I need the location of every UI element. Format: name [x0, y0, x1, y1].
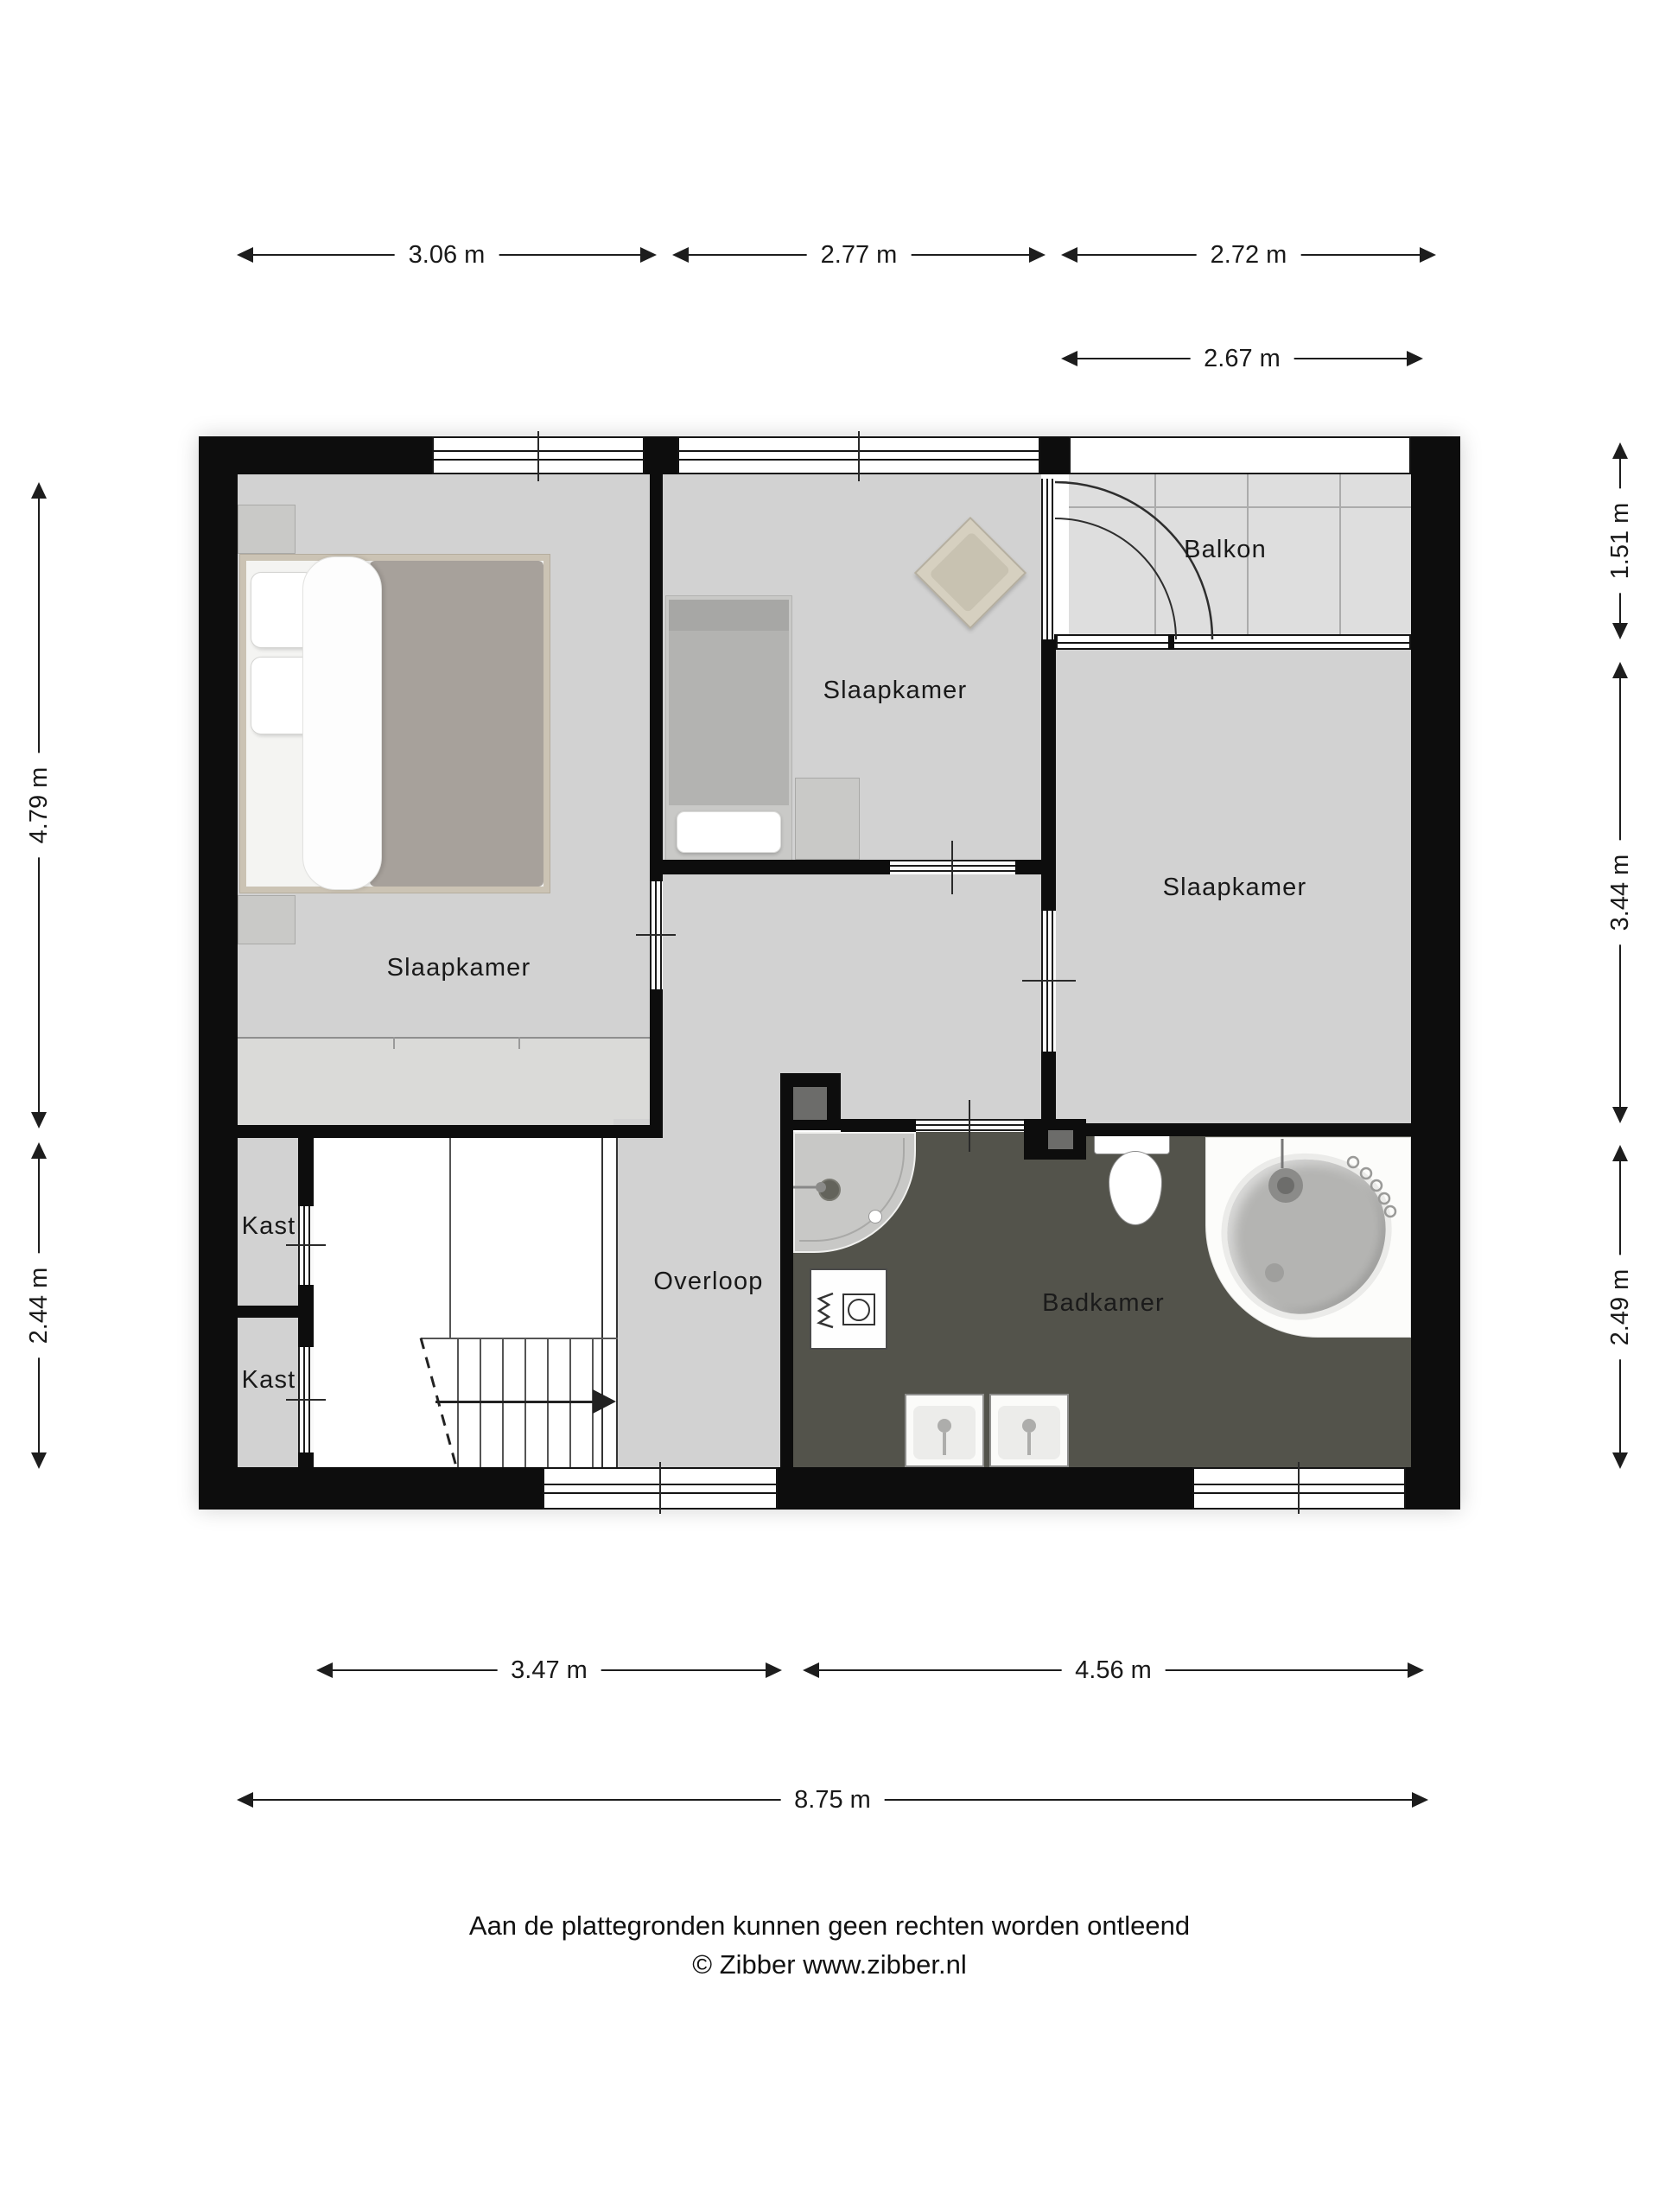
- dimension-balcony-width: 2.67 m: [1061, 345, 1423, 372]
- dimension-bottom-1: 3.47 m: [316, 1656, 782, 1684]
- dimension-top-1: 3.06 m: [237, 241, 657, 269]
- detail-overlay: [0, 0, 1659, 2212]
- sink-tap: [938, 1419, 951, 1433]
- dimension-bottom-2: 4.56 m: [803, 1656, 1424, 1684]
- dimension-left-2: 2.44 m: [25, 1142, 53, 1469]
- footer-disclaimer: Aan de plattegronden kunnen geen rechten…: [0, 1906, 1659, 1945]
- washing-machine-water-icon: [819, 1294, 833, 1327]
- bathtub-jet: [1379, 1193, 1389, 1204]
- room-label-bedroom-left: Slaapkamer: [329, 954, 588, 982]
- bathtub-jet: [1385, 1206, 1395, 1217]
- dimension-right-1: 1.51 m: [1606, 442, 1634, 639]
- bathtub-jet: [1348, 1157, 1358, 1167]
- sink-tap: [1022, 1419, 1036, 1433]
- dimension-top-2: 2.77 m: [672, 241, 1046, 269]
- dimension-right-3: 2.49 m: [1606, 1145, 1634, 1469]
- shower-head: [816, 1182, 826, 1192]
- room-label-bathroom: Badkamer: [995, 1289, 1211, 1317]
- dimension-top-3: 2.72 m: [1061, 241, 1436, 269]
- room-label-bedroom-middle: Slaapkamer: [766, 677, 1025, 704]
- dimension-total-width: 8.75 m: [237, 1786, 1428, 1814]
- room-label-closet-lower: Kast: [217, 1366, 321, 1394]
- room-label-landing: Overloop: [601, 1268, 817, 1295]
- floorplan-page: { "rooms": { "bedroom_left": { "label": …: [0, 0, 1659, 2212]
- room-label-balcony: Balkon: [1139, 536, 1312, 563]
- footer-copyright: © Zibber www.zibber.nl: [0, 1945, 1659, 1984]
- room-label-bedroom-right: Slaapkamer: [1105, 874, 1364, 901]
- footer: Aan de plattegronden kunnen geen rechten…: [0, 1906, 1659, 1984]
- bathtub-jet: [1371, 1180, 1382, 1191]
- dimension-right-2: 3.44 m: [1606, 662, 1634, 1123]
- room-label-closet-upper: Kast: [217, 1212, 321, 1240]
- dimension-left-1: 4.79 m: [25, 482, 53, 1128]
- bathtub-jet: [1361, 1168, 1371, 1179]
